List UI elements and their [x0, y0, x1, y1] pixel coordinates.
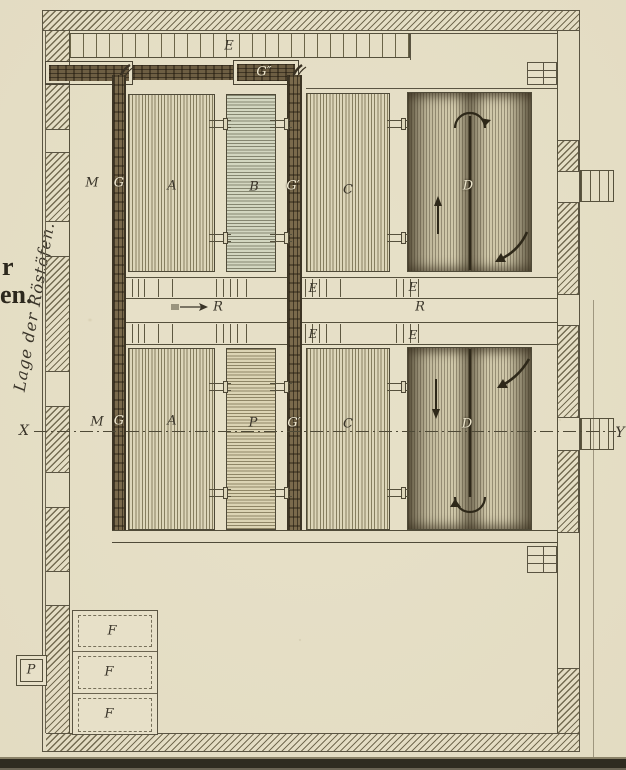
grate-tick — [237, 324, 238, 343]
chamber-connector — [387, 232, 409, 244]
label-mid-r-left: R — [213, 300, 223, 315]
label-lower-a: A — [167, 414, 176, 429]
chamber-connector — [270, 381, 292, 393]
plate-frame-right — [579, 10, 580, 752]
lower-chambers-base-bar — [112, 530, 557, 543]
label-mid-e-right-top: E — [409, 280, 418, 294]
grate-tick — [132, 324, 133, 343]
interior-line-top-right — [410, 33, 557, 34]
plate-fold-line — [593, 300, 594, 758]
grate-tick — [396, 279, 397, 297]
label-outside-p: P — [27, 663, 36, 678]
grate-tick — [158, 324, 159, 343]
label-upper-c: C — [343, 183, 353, 198]
chamber-connector — [209, 487, 231, 499]
label-upper-g-prime: G′ — [286, 179, 299, 194]
wall-left-strip — [45, 31, 70, 733]
chamber-connector — [270, 118, 292, 130]
grate-tick — [326, 324, 327, 343]
external-grate-y — [580, 418, 614, 450]
grate-tick — [246, 324, 247, 343]
label-ash-f3: F — [104, 707, 113, 722]
label-flue-g-doubleprime: G″ — [256, 65, 271, 80]
chamber-connector — [209, 232, 231, 244]
chamber-connector — [209, 118, 231, 130]
label-mid-r-right: R — [415, 300, 425, 315]
grate-tick — [305, 279, 306, 297]
chamber-connector — [387, 487, 409, 499]
chamber-c-lower — [306, 348, 390, 530]
grate-tick — [138, 279, 139, 297]
label-upper-b: B — [249, 180, 259, 195]
label-ash-f2: F — [104, 665, 113, 680]
grate-tick — [403, 324, 404, 343]
mid-grate-lower — [126, 322, 557, 345]
steps-top-right — [527, 62, 557, 85]
grate-tick — [418, 324, 419, 343]
grate-tick — [144, 279, 145, 297]
chamber-connector — [209, 381, 231, 393]
interior-line-upper — [306, 88, 557, 89]
interior-line-vert — [410, 33, 411, 60]
grate-tick — [138, 324, 139, 343]
vertical-flue-g — [112, 75, 126, 543]
plate-frame-left — [42, 10, 43, 752]
grate-tick — [246, 279, 247, 297]
grate-tick — [396, 324, 397, 343]
grate-tick — [305, 324, 306, 343]
chamber-connector — [387, 118, 409, 130]
label-lower-g-prime: G′ — [287, 416, 300, 431]
grate-tick — [172, 279, 173, 297]
label-lower-c: C — [343, 417, 353, 432]
label-axis-x: X — [19, 423, 29, 439]
grate-tick — [172, 324, 173, 343]
grate-tick — [158, 279, 159, 297]
grate-tick — [319, 279, 320, 297]
label-mid-e-left-top: E — [309, 281, 318, 295]
grate-tick — [223, 324, 224, 343]
label-mid-e-right-bot: E — [409, 328, 418, 342]
flow-arrow-r-icon — [170, 301, 210, 313]
external-grate-upper — [580, 170, 614, 202]
label-ash-f1: F — [107, 624, 116, 639]
grate-tick — [223, 279, 224, 297]
chamber-connector — [270, 232, 292, 244]
flue-middle-run — [133, 65, 233, 80]
grate-tick — [144, 324, 145, 343]
chamber-a-lower — [128, 348, 215, 530]
grate-tick — [230, 279, 231, 297]
label-upper-a: A — [167, 179, 176, 194]
steps-bottom-right — [527, 546, 557, 573]
vertical-flue-g-prime — [287, 75, 302, 543]
chamber-p-lower — [226, 348, 276, 530]
top-grate-channel — [70, 33, 410, 58]
label-upper-m: M — [85, 176, 98, 191]
grate-tick — [326, 279, 327, 297]
grate-tick — [340, 324, 341, 343]
grate-tick — [216, 324, 217, 343]
chamber-connector — [270, 487, 292, 499]
wall-right-strip — [557, 31, 579, 733]
label-lower-p: P — [249, 416, 258, 431]
label-axis-y: Y — [615, 425, 624, 441]
plate-frame-bottom — [42, 751, 580, 752]
grate-tick — [132, 279, 133, 297]
label-mid-e-left-bot: E — [309, 327, 318, 341]
mid-grate-upper — [126, 277, 557, 299]
label-lower-m: M — [90, 415, 103, 430]
grate-tick — [340, 279, 341, 297]
grate-tick — [237, 279, 238, 297]
grate-tick — [403, 279, 404, 297]
page-bottom-edge — [0, 757, 626, 770]
grate-tick — [230, 324, 231, 343]
chamber-d-lower-flow-icon — [407, 347, 532, 530]
label-upper-g: G — [114, 176, 124, 191]
label-lower-d: D — [462, 417, 472, 432]
label-upper-d: D — [463, 179, 473, 194]
label-lower-g: G — [114, 414, 124, 429]
axis-centerline — [34, 431, 616, 432]
cutoff-heading-line-1: r — [2, 254, 14, 280]
grate-tick — [216, 279, 217, 297]
grate-tick — [319, 324, 320, 343]
grate-tick — [418, 279, 419, 297]
wall-top — [43, 11, 579, 31]
chamber-connector — [387, 381, 409, 393]
label-top-grate-e: E — [224, 39, 234, 54]
engraving-plate-roasting-ovens-plan: r en. Lage der Röstöfen. E G″ — [0, 0, 626, 770]
